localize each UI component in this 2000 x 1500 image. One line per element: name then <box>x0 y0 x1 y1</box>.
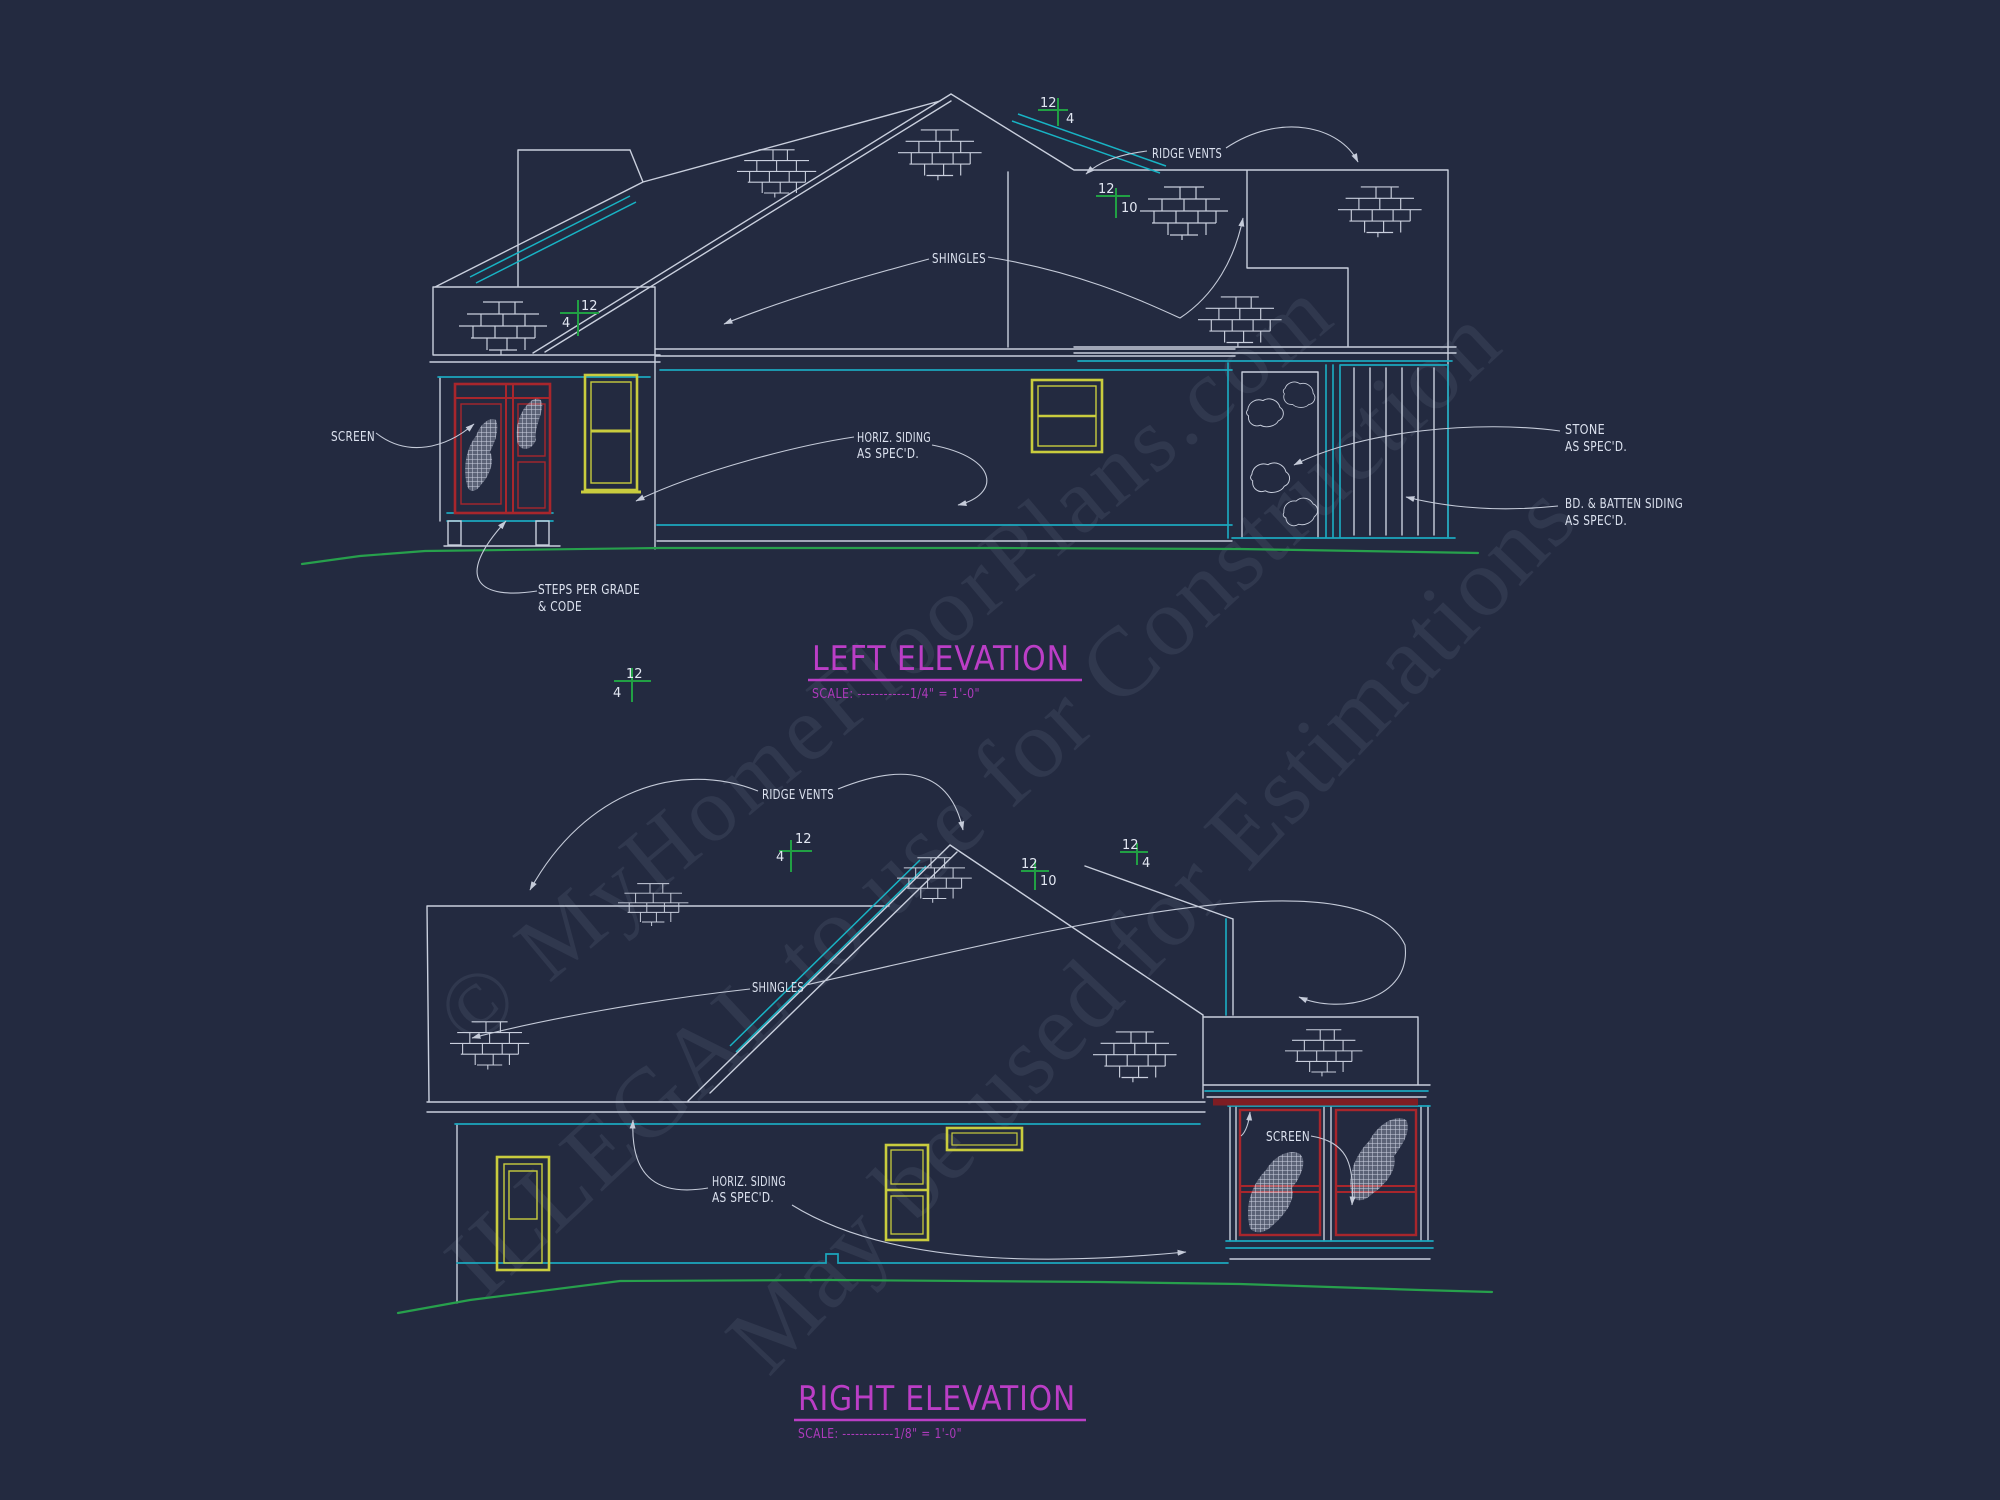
right-elevation-title: RIGHT ELEVATION <box>798 1379 1076 1419</box>
pitch-rise: 12 <box>795 832 812 847</box>
pitch-rise: 12 <box>626 667 643 682</box>
leader-screen <box>1241 1112 1250 1136</box>
label-stone-2: AS SPEC'D. <box>1565 439 1627 455</box>
label-horiz-siding: HORIZ. SIDING <box>712 1174 786 1190</box>
pitch-run: 4 <box>613 686 621 701</box>
right-elevation-scale: SCALE: ------------1/8" = 1'-0" <box>798 1426 962 1442</box>
grade-line <box>398 1280 1492 1313</box>
left-windows <box>581 375 1102 492</box>
brick-hatch <box>1338 187 1422 237</box>
right-elevation-title-block: RIGHT ELEVATION SCALE: ------------1/8" … <box>794 1379 1086 1442</box>
pitch-rise: 12 <box>1040 96 1057 111</box>
porch-post <box>536 521 549 545</box>
screen-mesh-hatch <box>465 419 497 491</box>
label-ridge-vents: RIDGE VENTS <box>1152 146 1222 162</box>
pitch-rise: 12 <box>1098 182 1115 197</box>
pitch-run: 10 <box>1040 874 1057 889</box>
label-shingles: SHINGLES <box>752 980 804 996</box>
leader-screen <box>376 424 474 448</box>
brick-hatch <box>737 150 816 198</box>
brick-hatch <box>459 302 547 355</box>
pitch-run: 4 <box>1066 112 1074 127</box>
label-shingles: SHINGLES <box>932 251 986 267</box>
brick-hatch <box>1140 187 1228 240</box>
elevation-drawing-sheet: © MyHomeFloorPlans.com ILLEGAL to use fo… <box>0 0 2000 1500</box>
pitch-marker-group: 12 4 12 4 12 10 <box>560 96 1138 336</box>
left-ridge-vent-strips <box>470 114 1166 283</box>
label-stone: STONE <box>1565 422 1605 438</box>
label-screen: SCREEN <box>1266 1129 1310 1145</box>
label-horiz-siding-2: AS SPEC'D. <box>857 446 919 462</box>
pitch-rise: 12 <box>1021 857 1038 872</box>
left-elevation-title: LEFT ELEVATION <box>812 639 1070 679</box>
label-steps-2: & CODE <box>538 599 582 615</box>
pitch-run: 10 <box>1121 201 1138 216</box>
label-horiz-siding-2: AS SPEC'D. <box>712 1190 774 1206</box>
label-batten-siding-2: AS SPEC'D. <box>1565 513 1627 529</box>
leader-horiz-siding <box>932 445 987 505</box>
leader-shingles <box>988 218 1243 318</box>
label-batten-siding: BD. & BATTEN SIDING <box>1565 496 1683 512</box>
label-screen: SCREEN <box>331 429 375 445</box>
leader-shingles <box>724 259 929 324</box>
blueprint-canvas: © MyHomeFloorPlans.com ILLEGAL to use fo… <box>0 0 2000 1500</box>
pitch-run: 4 <box>776 850 784 865</box>
leader-screen <box>1311 1136 1353 1205</box>
label-steps: STEPS PER GRADE <box>538 582 640 598</box>
label-horiz-siding: HORIZ. SIDING <box>857 430 931 446</box>
pitch-run: 4 <box>562 316 570 331</box>
pitch-run: 4 <box>1142 856 1150 871</box>
porch-post <box>448 521 461 545</box>
leader-ridge-vents <box>1226 127 1358 162</box>
brick-hatch <box>898 130 982 180</box>
leader-steps <box>477 521 537 593</box>
pitch-rise: 12 <box>1122 838 1139 853</box>
brick-hatch <box>1285 1030 1362 1077</box>
screen-mesh-hatch <box>1350 1118 1408 1200</box>
pitch-rise: 12 <box>581 299 598 314</box>
label-ridge-vents: RIDGE VENTS <box>762 787 834 803</box>
leader-horiz-siding <box>636 437 854 501</box>
screen-panel <box>518 462 545 508</box>
left-elevation-scale: SCALE: ------------1/4" = 1'-0" <box>812 686 980 702</box>
screen-mesh-hatch <box>517 399 543 449</box>
